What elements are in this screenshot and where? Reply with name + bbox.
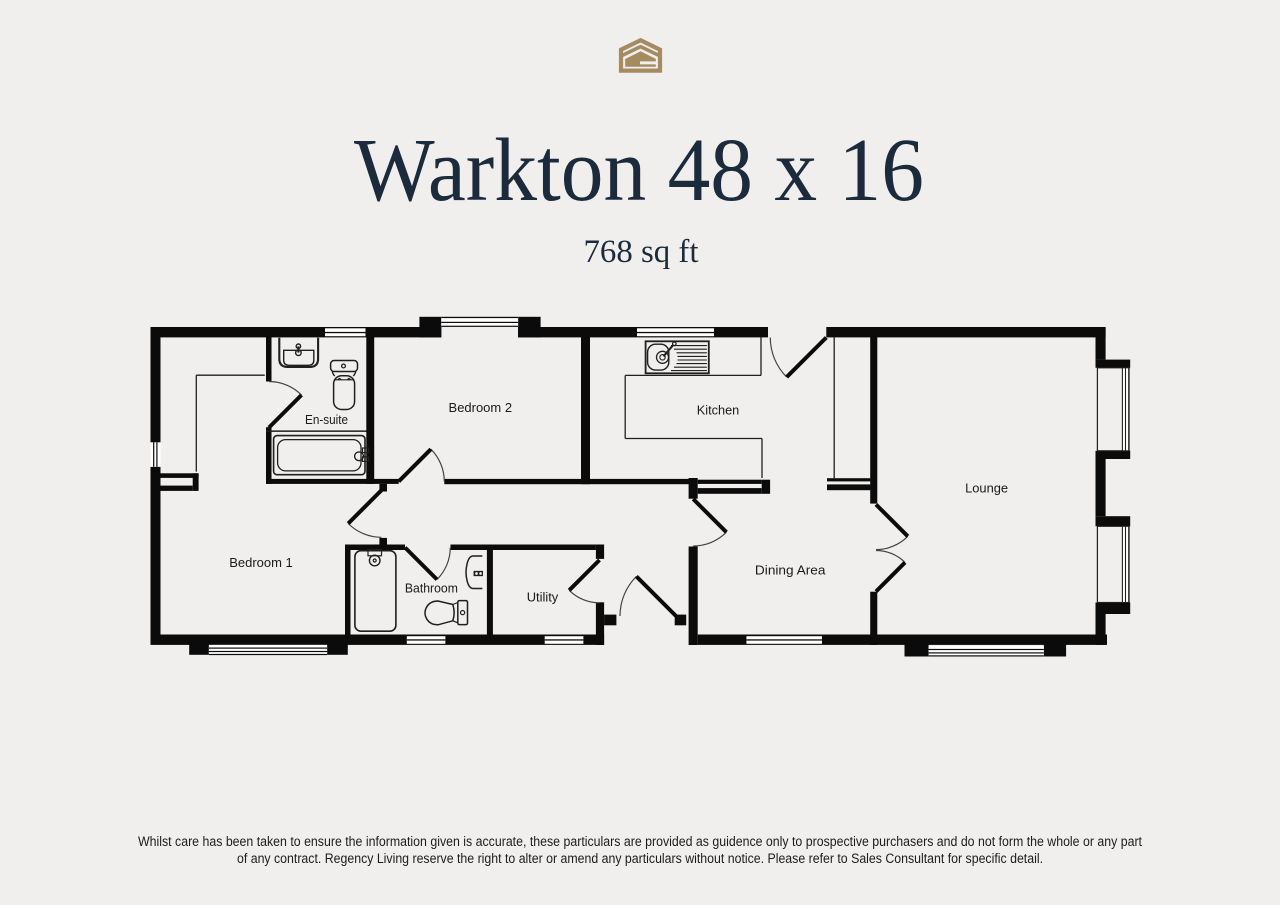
svg-text:Utility: Utility	[527, 590, 559, 605]
svg-text:Warkton 48 x 16: Warkton 48 x 16	[354, 119, 924, 220]
svg-text:En-suite: En-suite	[305, 412, 348, 427]
svg-text:Bedroom 2: Bedroom 2	[449, 400, 513, 415]
svg-text:of any contract. Regency Livin: of any contract. Regency Living reserve …	[237, 851, 1043, 866]
svg-text:Bedroom 1: Bedroom 1	[229, 555, 293, 570]
svg-text:Bathroom: Bathroom	[405, 581, 458, 596]
svg-text:Kitchen: Kitchen	[697, 403, 740, 418]
svg-text:Lounge: Lounge	[965, 481, 1008, 496]
svg-text:768 sq ft: 768 sq ft	[584, 234, 699, 270]
svg-text:Dining Area: Dining Area	[755, 563, 826, 578]
svg-text:Whilst care has been taken to: Whilst care has been taken to ensure the…	[138, 834, 1142, 849]
